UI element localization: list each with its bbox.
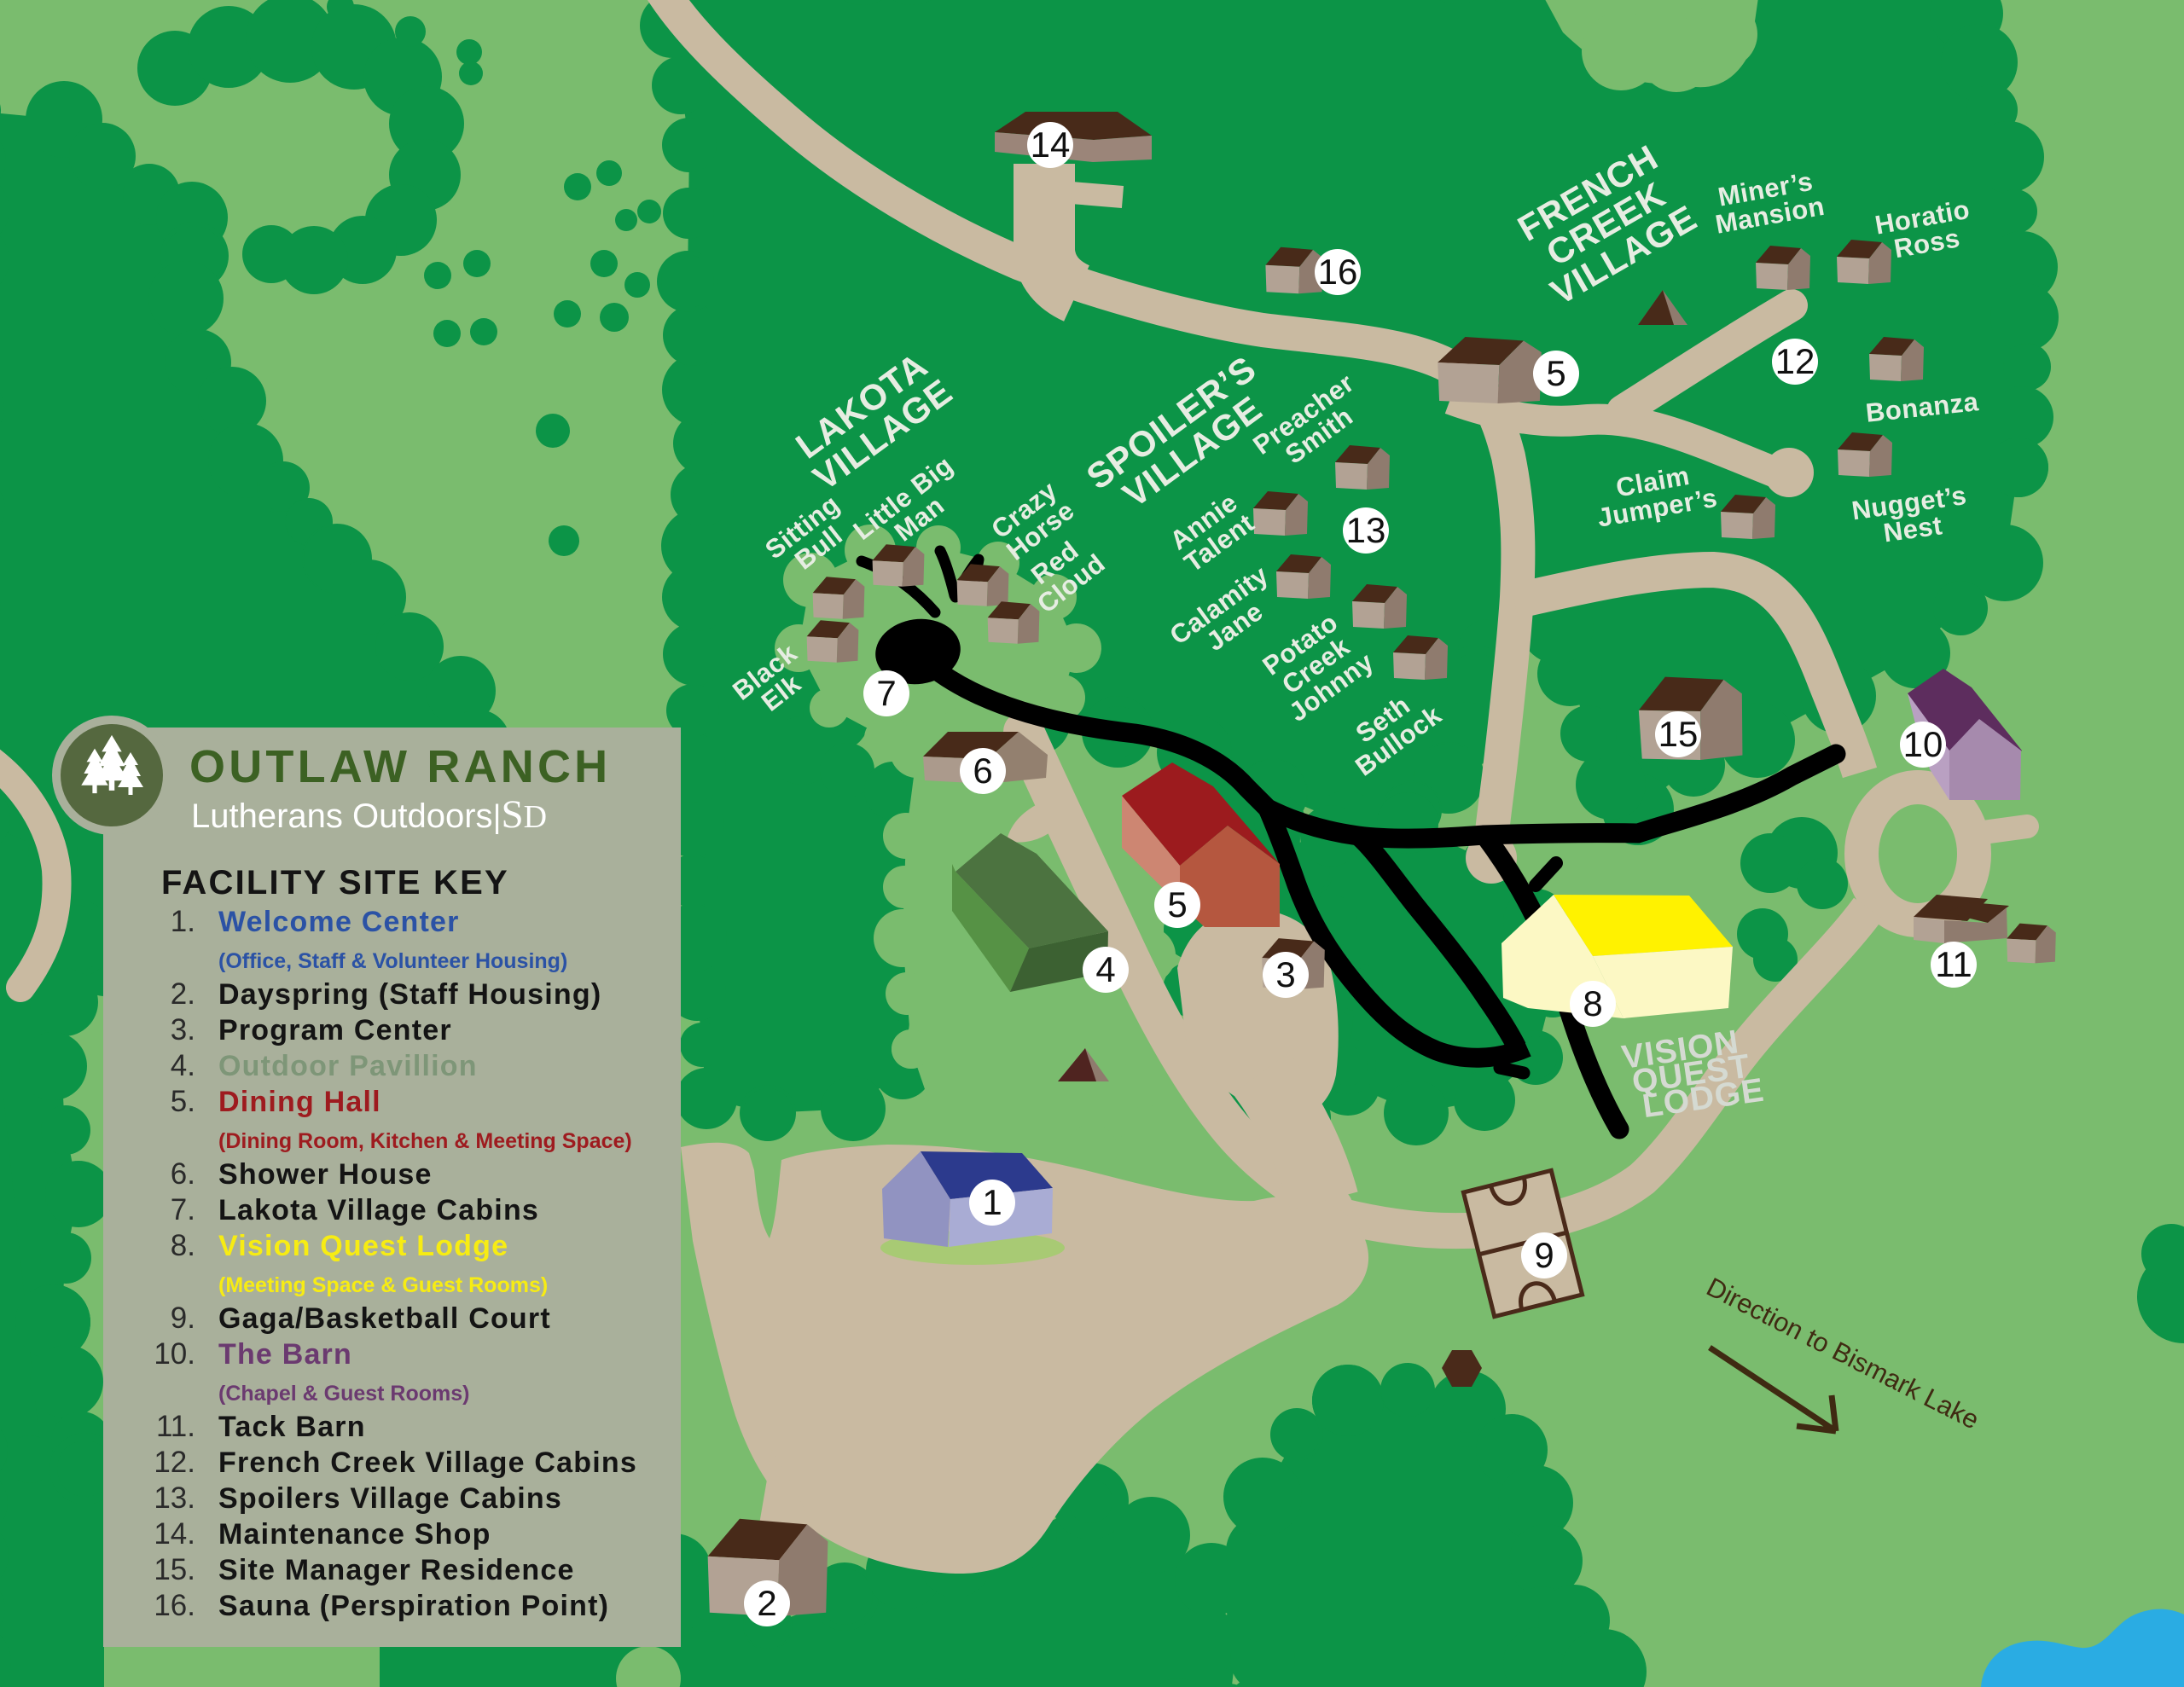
- svg-text:French Creek Village Cabins: French Creek Village Cabins: [218, 1446, 637, 1479]
- svg-text:11: 11: [1935, 944, 1972, 984]
- svg-text:OUTLAW RANCH: OUTLAW RANCH: [189, 741, 611, 792]
- svg-text:9.: 9.: [171, 1301, 195, 1335]
- svg-text:Lutherans Outdoors|SD: Lutherans Outdoors|SD: [191, 792, 547, 837]
- svg-text:2: 2: [757, 1583, 776, 1623]
- svg-text:8: 8: [1583, 983, 1602, 1023]
- svg-text:7.: 7.: [171, 1193, 195, 1226]
- svg-text:Vision Quest Lodge: Vision Quest Lodge: [218, 1230, 508, 1262]
- svg-text:Dining Hall: Dining Hall: [218, 1086, 381, 1118]
- svg-text:14.: 14.: [154, 1517, 195, 1551]
- svg-text:Dayspring (Staff Housing): Dayspring (Staff Housing): [218, 978, 601, 1011]
- svg-text:12.: 12.: [154, 1446, 195, 1479]
- svg-text:6: 6: [973, 751, 992, 791]
- svg-text:Maintenance Shop: Maintenance Shop: [218, 1518, 491, 1551]
- svg-text:15: 15: [1658, 714, 1699, 754]
- svg-text:1.: 1.: [171, 905, 195, 938]
- svg-text:10: 10: [1903, 724, 1943, 764]
- svg-text:16.: 16.: [154, 1589, 195, 1622]
- svg-text:The Barn: The Barn: [218, 1338, 352, 1371]
- svg-text:(Meeting Space & Guest Rooms): (Meeting Space & Guest Rooms): [218, 1273, 548, 1297]
- svg-text:13: 13: [1346, 510, 1386, 550]
- svg-text:3: 3: [1275, 954, 1295, 994]
- svg-text:3.: 3.: [171, 1013, 195, 1046]
- svg-text:12: 12: [1775, 341, 1815, 381]
- svg-text:Spoilers Village Cabins: Spoilers Village Cabins: [218, 1482, 562, 1515]
- svg-text:1: 1: [982, 1182, 1002, 1222]
- svg-text:4: 4: [1095, 949, 1115, 989]
- svg-text:(Office, Staff & Volunteer Hou: (Office, Staff & Volunteer Housing): [218, 949, 567, 973]
- svg-text:4.: 4.: [171, 1049, 195, 1082]
- svg-text:5.: 5.: [171, 1085, 195, 1118]
- svg-text:(Chapel & Guest Rooms): (Chapel & Guest Rooms): [218, 1382, 469, 1406]
- svg-text:6.: 6.: [171, 1157, 195, 1191]
- svg-text:13.: 13.: [154, 1481, 195, 1515]
- svg-text:Site Manager Residence: Site Manager Residence: [218, 1554, 575, 1586]
- svg-text:5: 5: [1546, 353, 1565, 393]
- svg-text:7: 7: [876, 673, 896, 713]
- svg-text:Gaga/Basketball Court: Gaga/Basketball Court: [218, 1302, 551, 1335]
- svg-text:10.: 10.: [154, 1337, 195, 1371]
- svg-text:Welcome Center: Welcome Center: [218, 906, 460, 938]
- svg-text:(Dining Room, Kitchen & Meetin: (Dining Room, Kitchen & Meeting Space): [218, 1129, 632, 1153]
- svg-text:Program Center: Program Center: [218, 1014, 452, 1046]
- svg-text:FACILITY SITE KEY: FACILITY SITE KEY: [161, 864, 509, 901]
- svg-text:Sauna (Perspiration Point): Sauna (Perspiration Point): [218, 1590, 609, 1622]
- svg-text:5: 5: [1167, 884, 1187, 925]
- svg-text:14: 14: [1031, 125, 1071, 165]
- svg-text:9: 9: [1534, 1235, 1554, 1275]
- svg-text:2.: 2.: [171, 977, 195, 1011]
- svg-text:Outdoor Pavillion: Outdoor Pavillion: [218, 1050, 478, 1082]
- svg-text:Shower House: Shower House: [218, 1158, 433, 1191]
- svg-text:16: 16: [1318, 252, 1358, 292]
- svg-text:11.: 11.: [156, 1410, 195, 1443]
- svg-text:8.: 8.: [171, 1229, 195, 1262]
- svg-text:15.: 15.: [154, 1553, 195, 1586]
- svg-text:Tack Barn: Tack Barn: [218, 1411, 366, 1443]
- svg-text:Lakota Village Cabins: Lakota Village Cabins: [218, 1194, 539, 1226]
